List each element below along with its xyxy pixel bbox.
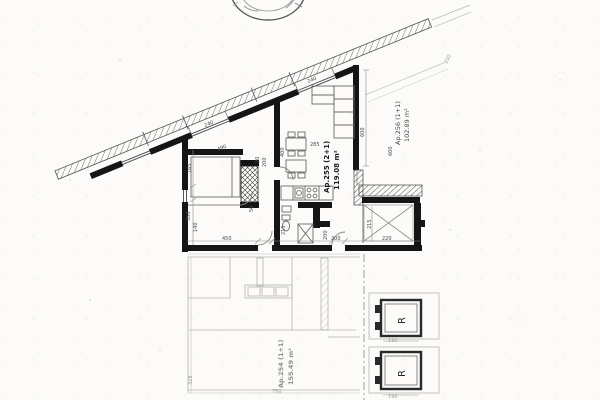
bottom-wall-mid: [272, 245, 332, 251]
elevator-2: R: [375, 352, 421, 395]
sofa: [312, 86, 354, 138]
toilet-tank: [282, 215, 290, 220]
dim-label: 400: [280, 147, 286, 157]
dim-label: 140: [193, 222, 199, 232]
living-partition-lower: [274, 180, 280, 245]
unit-255-name: Ap.255 (2+1): [323, 141, 331, 193]
unit-labels: Ap.255 (2+1) 119.08 m² Ap.256 (1+1) 102.…: [277, 101, 411, 388]
dim-label: 600: [388, 146, 394, 156]
bedroom-partition-wall: [185, 149, 243, 155]
dim-label: 220: [382, 236, 392, 242]
dim-label: 215: [281, 225, 287, 235]
round-stamp-seal: [231, 0, 305, 20]
dim-label: 200: [443, 54, 452, 65]
dim-label: 600: [360, 127, 366, 137]
bath-wall: [313, 208, 320, 228]
bed: [191, 157, 240, 197]
dim-label: 165: [187, 163, 193, 173]
unit-254-area: 155.49 m²: [287, 348, 295, 385]
dim-label: 200: [323, 230, 329, 240]
crosshatched-pier: [241, 166, 258, 202]
elevator-1-label: R: [397, 317, 408, 324]
site-boundary-hatched-band: [54, 5, 471, 182]
dimension-lines: [187, 70, 420, 245]
bathroom-fixtures: [282, 206, 313, 243]
dim-label: 50: [249, 206, 255, 212]
elevator-2-label: R: [397, 370, 408, 377]
dim-label: 215: [367, 219, 373, 229]
dim-label: 450: [222, 236, 232, 242]
dim-label: 285: [310, 142, 320, 148]
lower-floor-faded-plan: [188, 254, 360, 393]
washbasin: [282, 206, 291, 212]
stove: [307, 188, 317, 198]
bath-wall-block: [320, 221, 330, 227]
dim-label: 350: [186, 211, 192, 221]
bottom-wall-right: [345, 245, 422, 251]
floorplan-canvas: Ap.255 (2+1) 119.08 m² Ap.256 (1+1) 102.…: [0, 0, 600, 400]
dim-label: 90: [255, 157, 261, 163]
elevator-1: R: [375, 300, 421, 341]
unit-254-name: Ap.254 (1+1): [277, 340, 285, 388]
dim-label: 200: [331, 236, 341, 242]
elevator-block: R R: [369, 293, 439, 395]
unit-255-area: 119.08 m²: [333, 150, 341, 190]
unit-256-name: Ap.256 (1+1): [394, 101, 402, 145]
exterior-diagonal-wall: [91, 68, 357, 177]
kitchen-wall: [298, 202, 332, 208]
floorplan-page: Ap.255 (2+1) 119.08 m² Ap.256 (1+1) 102.…: [0, 0, 600, 400]
dim-label: 200: [262, 157, 268, 167]
left-exterior-wall-lower: [182, 202, 188, 252]
bottom-wall-left: [182, 245, 258, 251]
unit-256-area: 102.89 m²: [403, 108, 411, 142]
